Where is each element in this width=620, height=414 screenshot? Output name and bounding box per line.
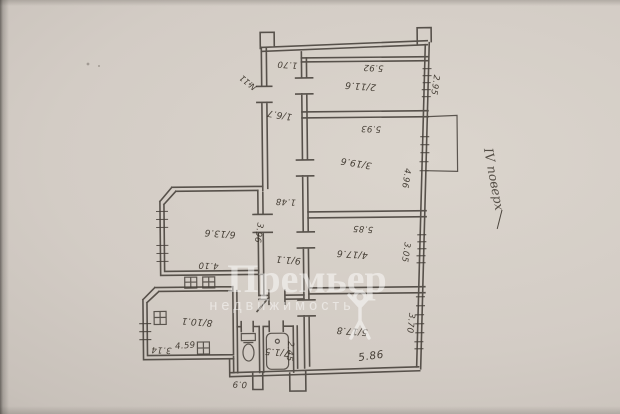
watermark: Премьер недвижимость [209,256,386,338]
floorplan-svg: 1.70 5.92 2.95 5.93 4.96 5.85 3.05 5.86 … [0,0,620,414]
apartment-number-mark: №11 [237,73,259,93]
scanned-floor-plan-photo: 1.70 5.92 2.95 5.93 4.96 5.85 3.05 5.86 … [0,0,620,414]
wall-outline-top [260,28,431,52]
dim-room5-depth: 3.70 [404,312,416,334]
dim-room2-depth: 2.95 [428,74,441,96]
floor-note-underline [497,210,502,229]
dim-room4-width: 5.85 [353,223,374,234]
window-room3 [419,137,429,171]
wall-outline-bottom [230,355,420,392]
paper-specks [87,63,100,67]
dim-room6-depth: 3.96 [252,222,265,244]
dim-hall-width: 1.70 [277,59,298,70]
dim-vestibule-width: 1.48 [275,196,296,207]
dim-room3-depth: 4.96 [399,167,412,189]
room-label-room-2: 2/11.6 [345,79,377,92]
dim-room3-width: 5.93 [361,123,382,134]
floor-note: IV поверх [481,146,508,229]
room-label-hall: 1/6.7 [266,107,293,122]
room-labels: 1/6.7 2/11.6 3/19.6 4/17.6 5/17.8 6/13.6… [178,79,379,359]
window-room4 [416,235,426,263]
toilet-icon [241,333,255,361]
dim-room2-width: 5.92 [363,62,384,73]
floor-note-text: IV поверх [481,146,508,212]
watermark-tagline: недвижимость [209,298,354,314]
dim-toilet-width: 0.9 [232,378,247,389]
wall-corridor-right [295,52,315,368]
room-label-kitchen: 8/10.1 [181,315,213,328]
dimension-labels: 1.70 5.92 2.95 5.93 4.96 5.85 3.05 5.86 … [148,57,444,390]
dim-room5-width: 5.86 [358,349,385,364]
dim-room4-depth: 3.05 [399,241,412,263]
window-kitchen-left [139,324,151,340]
room-label-bathroom: 7/1.5 [264,345,290,358]
walls-layer [140,28,435,393]
balcony-outline [426,115,458,171]
room-label-room-6: 6/13.6 [204,227,236,240]
dim-kitchen-width: 4.59 [175,340,196,352]
room-label-room-3: 3/19.6 [340,155,373,171]
window-room6-left [156,211,169,261]
dim-kitchen-left: 3.14 [151,344,172,355]
dim-room6-width: 4.10 [198,260,219,271]
